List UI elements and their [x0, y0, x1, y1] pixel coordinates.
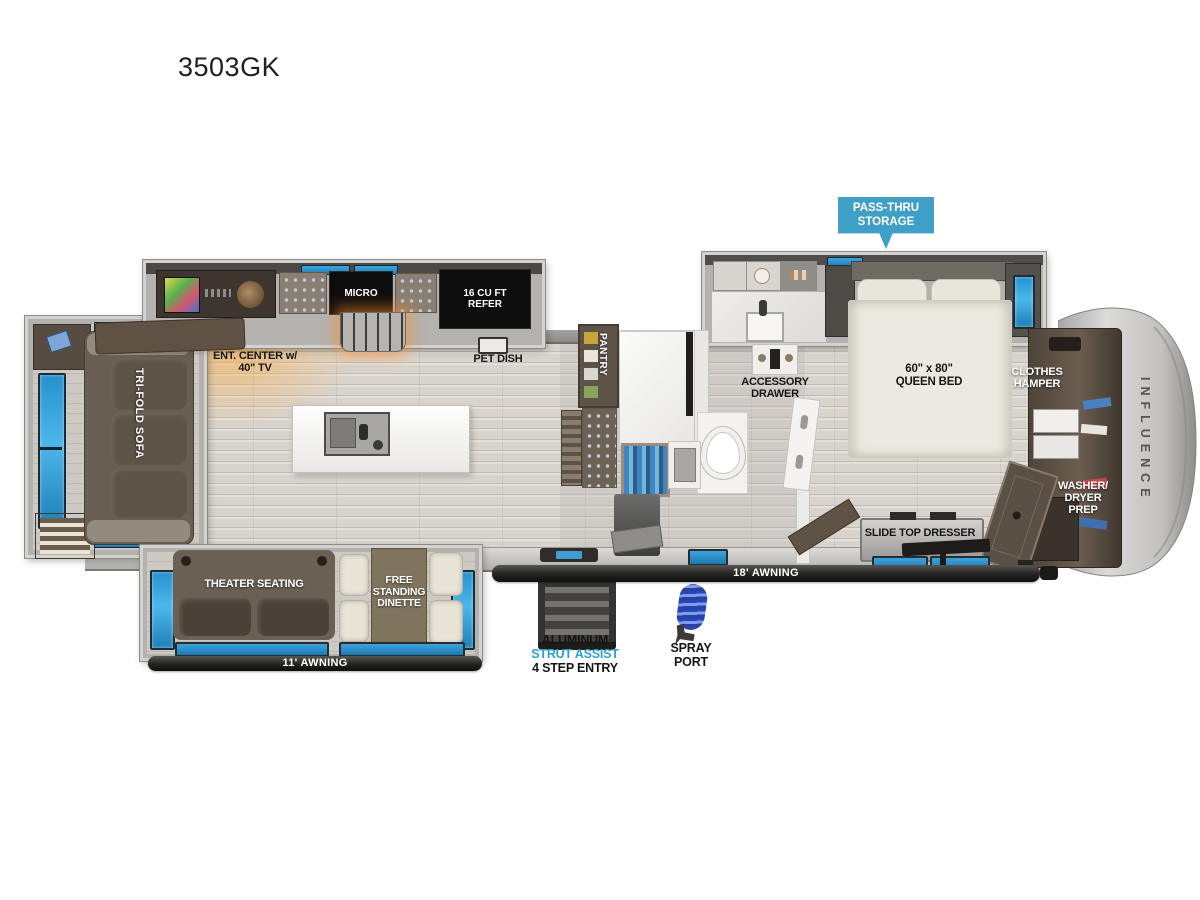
accessory-drawer-label-line1: ACCESSORY	[733, 376, 817, 388]
spray-port-label-line2: PORT	[655, 655, 727, 669]
theater-cupholder-right	[317, 556, 327, 566]
accessory-drawer	[752, 344, 798, 375]
closet-clothes-blue	[1083, 397, 1112, 410]
main-awning-label: 18' AWNING	[733, 567, 799, 579]
brand-label: INFLUENCE	[1138, 377, 1152, 527]
stereo-buttons	[205, 289, 231, 297]
washer-dryer-label-line2: DRYER	[1046, 492, 1120, 504]
bath-door-pull-top	[800, 415, 809, 430]
living-slide-window-left	[150, 570, 175, 650]
dinette-chair-top-right	[429, 552, 463, 596]
door-mat	[688, 549, 728, 566]
entry-label: ALUMINUM STRUT ASSIST 4 STEP ENTRY	[505, 633, 645, 675]
dinette-label-line1: FREE	[366, 575, 432, 587]
tv-screen	[164, 277, 200, 313]
overhead-cabinet-right	[395, 273, 437, 313]
closet-drawer-bottom	[1033, 435, 1079, 459]
theater-cupholder-left	[181, 556, 191, 566]
bath-door-pull-bottom	[795, 454, 804, 469]
accessory-drawer-knob-right	[785, 354, 793, 362]
dinette-chair-top-left	[339, 554, 369, 596]
refer-label-line2: REFER	[468, 299, 502, 310]
theater-seat-left	[179, 598, 251, 636]
vanity-counter	[711, 291, 827, 343]
pass-thru-storage-callout: PASS-THRU STORAGE	[838, 197, 934, 249]
shower-door-track	[686, 332, 693, 416]
entry-label-line3: 4 STEP ENTRY	[505, 661, 645, 675]
spray-port-label-line1: SPRAY	[655, 641, 727, 655]
kitchen-island	[292, 405, 470, 473]
pantry-shelf-3	[584, 368, 598, 380]
sofa-label: TRI-FOLD SOFA	[133, 368, 145, 518]
entertainment-center	[156, 270, 276, 318]
island-sink	[324, 412, 390, 456]
dinette-label-line3: DINETTE	[366, 598, 432, 610]
accessory-drawer-label: ACCESSORY DRAWER	[733, 376, 817, 400]
hamper-opening	[1049, 337, 1081, 351]
queen-bed: 60" x 80" QUEEN BED	[848, 300, 1012, 458]
sink-faucet	[359, 424, 368, 440]
main-awning-bar: 18' AWNING	[492, 565, 1040, 582]
ent-center-label: ENT. CENTER w/ 40" TV	[200, 350, 310, 374]
toilet	[700, 426, 746, 480]
control-panel	[540, 548, 598, 562]
sofa-arm-bottom	[87, 520, 190, 542]
dinette-table: FREE STANDING DINETTE	[371, 548, 427, 648]
entry-label-line2: STRUT ASSIST	[505, 647, 645, 661]
clothes-hamper-label-line1: CLOTHES	[998, 366, 1076, 378]
slat-shelf	[561, 410, 582, 486]
microwave-label: MICRO	[344, 288, 377, 299]
queen-bed-label-line2: QUEEN BED	[849, 376, 1009, 389]
vanity-sink	[746, 312, 784, 342]
rear-awning-label: 11' AWNING	[282, 657, 347, 669]
dresser-hinge-right	[930, 512, 956, 520]
spray-port-hose	[675, 582, 709, 631]
tri-fold-sofa: TRI-FOLD SOFA	[84, 331, 194, 545]
ent-center-label-line1: ENT. CENTER w/	[200, 350, 310, 362]
linen-cabinet	[668, 441, 701, 489]
sofa-cushion-3	[111, 468, 187, 518]
pet-dish	[478, 337, 508, 354]
pantry-shelf-2	[584, 350, 598, 362]
spray-port-label: SPRAY PORT	[655, 641, 727, 669]
vanity-toiletries	[754, 268, 770, 284]
queen-bed-label-line1: 60" x 80"	[849, 363, 1009, 376]
pantry-shelf-4	[584, 386, 598, 398]
sink-knob	[373, 440, 383, 450]
sofa-cushion-2	[111, 413, 187, 465]
dinette-chair-bottom-left	[339, 600, 369, 642]
washer-dryer-label: WASHER/ DRYER PREP	[1046, 480, 1120, 516]
page-title: 3503GK	[178, 52, 280, 83]
closet-clothes-blue2	[1079, 517, 1108, 530]
pass-thru-line1: PASS-THRU	[838, 201, 934, 215]
vanity-overhead-cabinets	[713, 261, 817, 291]
refer-label-line1: 16 CU FT	[463, 288, 506, 299]
headboard	[851, 261, 1015, 281]
dresser-hinge-left	[890, 512, 916, 520]
ent-center-label-line2: 40" TV	[200, 362, 310, 374]
living-slide-mat-left	[175, 642, 329, 657]
vanity-faucet	[759, 300, 767, 316]
bedroom-window-right	[1013, 275, 1035, 329]
sink-basin	[330, 418, 356, 448]
accessory-drawer-knob-left	[758, 354, 766, 362]
overhead-cabinet-left	[279, 272, 327, 314]
accessory-drawer-label-line2: DRAWER	[733, 388, 817, 400]
rear-awning-bar: 11' AWNING	[148, 656, 482, 671]
living-slide-mat-right	[339, 642, 465, 657]
theater-seating-label: THEATER SEATING	[173, 578, 335, 590]
pet-dish-label: PET DISH	[458, 353, 538, 365]
washer-dryer-label-line1: WASHER/	[1046, 480, 1120, 492]
sofa-cushion-1	[111, 358, 187, 410]
linen-cabinet-panel	[674, 448, 696, 482]
dinette-label: FREE STANDING DINETTE	[366, 575, 432, 610]
wardrobe-cabinet	[621, 443, 670, 497]
living-slide: THEATER SEATING FREE STANDING DINETTE	[140, 545, 482, 661]
front-closet	[1028, 328, 1122, 568]
control-panel-screen	[556, 551, 582, 559]
stereo-speaker	[237, 281, 264, 308]
theater-seating: THEATER SEATING	[173, 550, 335, 640]
pantry-cabinet: PANTRY	[578, 324, 619, 408]
closet-clothes-white	[1081, 424, 1108, 435]
floorplan-canvas: 3503GK PASS-THRU STORAGE TRI-FOLD SOFA	[0, 0, 1200, 900]
sofa-slide-window	[38, 373, 66, 529]
range-cooktop	[340, 312, 406, 352]
entry-label-line1: ALUMINUM	[505, 633, 645, 647]
pass-thru-line2: STORAGE	[838, 215, 934, 229]
washer-dryer-label-line3: PREP	[1046, 504, 1120, 516]
clothes-hamper-label-line2: HAMPER	[998, 378, 1076, 390]
dinette-chair-bottom-right	[429, 600, 463, 644]
pantry-shelf-1	[584, 332, 598, 344]
slide-top-dresser-label: SLIDE TOP DRESSER	[862, 527, 978, 539]
closet-drawer-top	[1033, 409, 1079, 433]
sofa-window-mullion	[40, 447, 62, 450]
microwave: MICRO	[329, 271, 393, 315]
theater-seat-right	[257, 598, 329, 636]
pantry-label: PANTRY	[597, 333, 608, 401]
refrigerator: 16 CU FT REFER	[439, 269, 531, 329]
clothes-hamper-label: CLOTHES HAMPER	[998, 366, 1076, 390]
accessory-drawer-item	[770, 349, 780, 369]
vanity-toiletries-2	[790, 270, 808, 280]
bath-storage-cabinet	[582, 408, 617, 488]
queen-bed-label: 60" x 80" QUEEN BED	[849, 363, 1009, 388]
awning-end-knob	[1040, 566, 1058, 580]
